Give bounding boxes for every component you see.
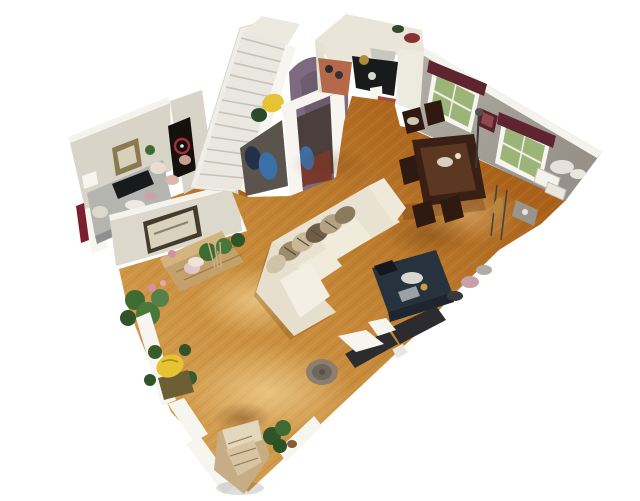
coat-green <box>251 108 267 122</box>
tip-shrub-3 <box>273 439 287 453</box>
pouf-knot <box>319 369 325 375</box>
shelf-plant <box>145 145 155 155</box>
pouf <box>306 359 338 385</box>
counter-terracotta <box>318 58 352 96</box>
shelf-clutter-1 <box>150 162 166 174</box>
coffee-table-tray <box>401 272 423 284</box>
apartment-svg <box>0 0 640 501</box>
counter-pot-2 <box>335 71 343 79</box>
flower-pink-2 <box>160 280 166 286</box>
floor-lamp-shade <box>475 108 483 116</box>
table-item <box>455 153 461 159</box>
cabinet-top-plant <box>392 25 404 33</box>
dining-table-glare <box>420 143 476 196</box>
yc-leaf-2 <box>179 344 191 356</box>
scan-artifact-1 <box>550 160 574 174</box>
plant-7 <box>231 233 245 247</box>
dining-chair-cushion <box>407 117 419 125</box>
counter-pot-1 <box>325 65 333 73</box>
pot-on-stove <box>368 72 376 80</box>
edge-clutter-pink <box>461 276 479 288</box>
yc-leaf-4 <box>144 374 156 386</box>
scan-artifact-2 <box>570 169 586 179</box>
desk-clutter-pink <box>144 192 156 200</box>
tip-shrub-2 <box>275 420 291 436</box>
desk-clutter-white <box>92 206 108 218</box>
dartboard-center <box>180 144 184 148</box>
floor-dark-patch-3 <box>290 147 370 183</box>
yc-leaf-1 <box>148 345 162 359</box>
cabinet-top-decor <box>404 33 420 43</box>
table-centerpiece <box>437 157 453 167</box>
brass-pan <box>359 55 369 65</box>
tip-clutter-brown <box>287 440 297 448</box>
edge-clutter-dark <box>447 291 463 301</box>
stool-item <box>522 209 528 215</box>
dollhouse-3d-view[interactable] <box>0 0 640 501</box>
kitchen-cabinets-right <box>396 48 424 112</box>
coffee-table-gold-item <box>421 284 428 291</box>
plant-6 <box>216 238 232 254</box>
edge-clutter-gray <box>476 265 492 275</box>
plant-4 <box>151 289 169 307</box>
plant-3 <box>120 310 136 326</box>
wall-clutter-white <box>188 257 204 267</box>
shelf-clutter-2 <box>165 175 179 185</box>
flower-pink-1 <box>148 284 156 292</box>
flower-pink-3 <box>168 250 176 258</box>
shelf-clutter-3 <box>179 155 191 165</box>
